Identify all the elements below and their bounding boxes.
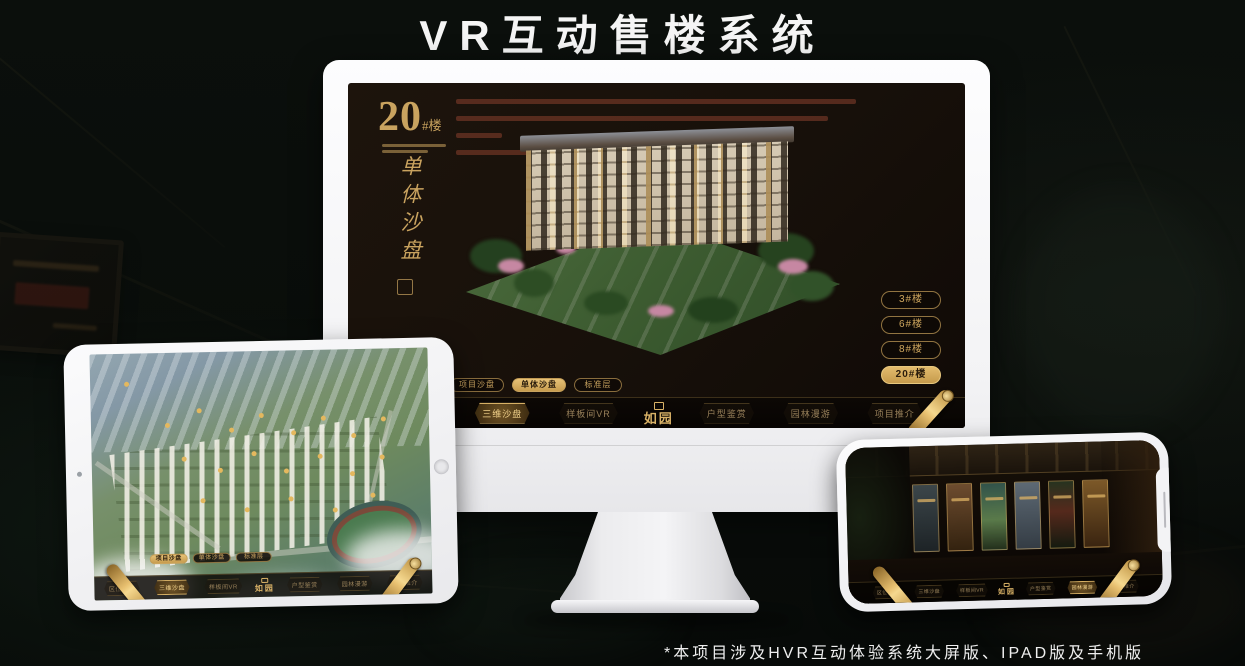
menu-item-3d-sandtable[interactable]: 三维沙盘	[912, 585, 946, 599]
gallery-panel[interactable]	[946, 483, 974, 552]
tab-standard-floor[interactable]: 标准层	[236, 552, 272, 563]
menu-item-floorplans[interactable]: 户型鉴赏	[696, 403, 758, 424]
ipad-screen: 项目沙盘 单体沙盘 标准层 区位交通 三维沙盘 样板间VR 如园 户型鉴赏 园林…	[89, 347, 432, 600]
monitor-stand-neck	[560, 512, 750, 602]
ipad-tab-row: 项目沙盘 单体沙盘 标准层	[150, 552, 272, 565]
tree	[514, 269, 554, 297]
scene-gallery	[912, 479, 1110, 552]
ipad-camera-icon	[77, 472, 82, 477]
gallery-panel[interactable]	[1082, 479, 1110, 548]
tab-single-sandtable[interactable]: 单体沙盘	[193, 553, 231, 564]
tab-standard-floor[interactable]: 标准层	[574, 378, 622, 392]
page-title: VR互动售楼系统	[0, 2, 1245, 63]
phone-device: 区位交通 三维沙盘 样板间VR 如园 户型鉴赏 园林漫游 项目推介	[836, 432, 1172, 613]
background-shape	[1020, 190, 1220, 430]
building-number: 20	[378, 94, 422, 140]
map-road	[0, 54, 226, 248]
heading-caption-line	[382, 150, 428, 153]
floor-button-20[interactable]: 20#楼	[881, 366, 941, 384]
seal-ornament	[397, 279, 413, 295]
sandtable-heading: 20#楼	[378, 93, 446, 155]
tab-single-sandtable[interactable]: 单体沙盘	[512, 378, 566, 392]
menu-item-showroom-vr[interactable]: 样板间VR	[555, 403, 622, 424]
ipad-device: 项目沙盘 单体沙盘 标准层 区位交通 三维沙盘 样板间VR 如园 户型鉴赏 园林…	[63, 337, 458, 611]
floor-button-8[interactable]: 8#楼	[881, 341, 941, 359]
phone-screen: 区位交通 三维沙盘 样板间VR 如园 户型鉴赏 园林漫游 项目推介	[845, 440, 1163, 604]
menu-item-3d-sandtable[interactable]: 三维沙盘	[152, 579, 192, 595]
logo-seal-icon	[261, 578, 268, 583]
tree	[584, 291, 628, 315]
phone-notch	[1156, 468, 1171, 552]
gallery-panel[interactable]	[980, 482, 1008, 551]
sandtable-vertical-title: 单体沙盘	[395, 155, 425, 267]
tree	[790, 271, 834, 301]
brand-logo[interactable]: 如园	[644, 402, 674, 425]
menu-item-3d-sandtable[interactable]: 三维沙盘	[471, 403, 533, 424]
tab-project-sandtable[interactable]: 项目沙盘	[450, 378, 504, 392]
menu-item-garden-tour[interactable]: 园林漫游	[780, 403, 842, 424]
heading-caption-line	[382, 144, 446, 147]
menu-item-floorplans[interactable]: 户型鉴赏	[285, 577, 325, 593]
sandtable-tab-row: 项目沙盘 单体沙盘 标准层	[450, 378, 622, 392]
floor-button-6[interactable]: 6#楼	[881, 316, 941, 334]
building-model[interactable]	[526, 126, 788, 257]
flower-bush	[498, 259, 524, 273]
menu-item-garden-tour[interactable]: 园林漫游	[1065, 581, 1099, 595]
building-number-unit: #楼	[422, 118, 442, 133]
gallery-panel[interactable]	[912, 484, 940, 553]
floor-button-3[interactable]: 3#楼	[881, 291, 941, 309]
promo-canvas: VR互动售楼系统 20#楼 单体沙盘	[0, 0, 1245, 666]
logo-seal-icon	[1004, 583, 1010, 587]
footnote-text: *本项目涉及HVR互动体验系统大屏版、IPAD版及手机版	[664, 639, 1144, 663]
tab-project-sandtable[interactable]: 项目沙盘	[150, 554, 188, 565]
floor-button-group: 3#楼 6#楼 8#楼 20#楼	[881, 291, 941, 391]
brand-logo[interactable]: 如园	[255, 578, 275, 593]
menu-item-garden-tour[interactable]: 园林漫游	[335, 576, 375, 592]
monitor-shadow	[523, 613, 793, 627]
menu-item-showroom-vr[interactable]: 样板间VR	[202, 578, 245, 594]
award-plaque	[0, 232, 124, 359]
gallery-panel[interactable]	[1048, 480, 1076, 549]
flower-bush	[778, 259, 808, 274]
menu-item-showroom-vr[interactable]: 样板间VR	[954, 583, 990, 597]
tree	[688, 297, 738, 323]
gallery-panel[interactable]	[1014, 481, 1042, 550]
menu-item-floorplans[interactable]: 户型鉴赏	[1024, 582, 1058, 596]
brand-logo[interactable]: 如园	[998, 583, 1016, 596]
building-facade	[526, 141, 788, 250]
monitor-stand-base	[551, 600, 759, 613]
flower-bush	[648, 305, 674, 317]
logo-seal-icon	[654, 402, 664, 410]
